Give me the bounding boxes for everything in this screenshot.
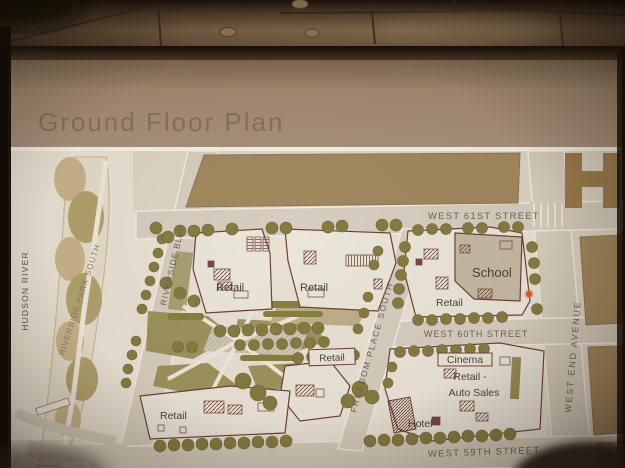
photo-right-edge: [617, 46, 625, 468]
photo-effects: [0, 0, 625, 468]
vignette-overlay: [0, 0, 625, 468]
photo-of-projection-screen: Ground Floor Plan: [0, 0, 625, 468]
scene: Ground Floor Plan: [0, 0, 625, 468]
photo-left-edge: [0, 26, 11, 468]
